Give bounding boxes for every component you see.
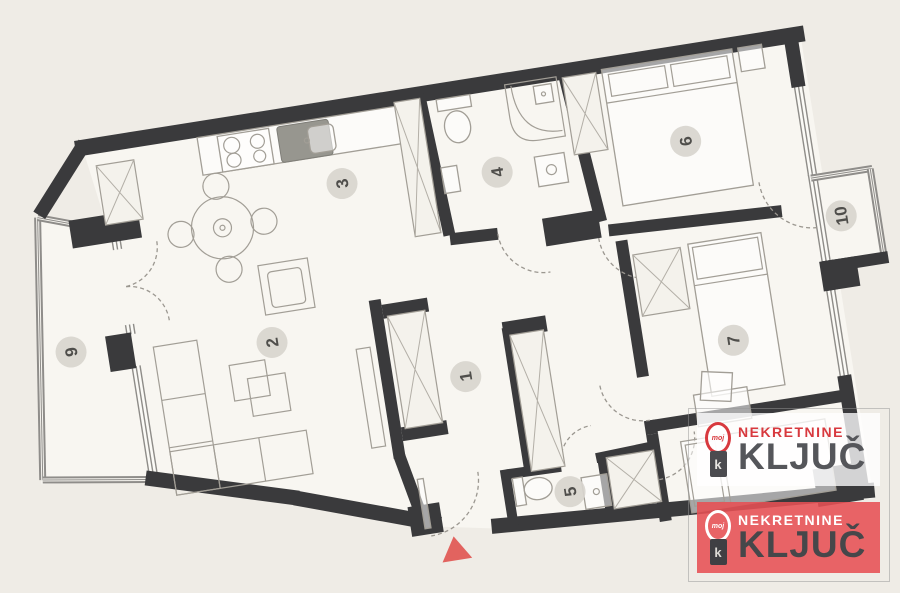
floor-plan-page: 1 2 3 4 5 6 7 9 10 bbox=[0, 0, 900, 593]
shower-head bbox=[533, 84, 554, 105]
sink-basin bbox=[307, 123, 337, 154]
wall-right-upper bbox=[791, 40, 799, 87]
watermark-logo-red: moj k NEKRETNINE KLJUČ bbox=[697, 502, 880, 573]
chunk-balcony-corner bbox=[822, 256, 860, 291]
key-icon: moj k bbox=[705, 510, 731, 565]
key-script-text: moj bbox=[712, 523, 724, 530]
bath-sink bbox=[441, 165, 461, 193]
key-letter: k bbox=[714, 458, 721, 471]
room-number-10: 10 bbox=[831, 205, 853, 227]
closet-by-toilet bbox=[606, 450, 662, 509]
terrace-pillar bbox=[105, 332, 136, 372]
toilet-sink bbox=[581, 474, 612, 510]
wall-bath-bottom bbox=[450, 232, 498, 241]
watermark-logo-light: moj k NEKRETNINE KLJUČ bbox=[697, 413, 880, 486]
washing-machine bbox=[534, 152, 568, 186]
wardrobe-bedroom7 bbox=[633, 247, 690, 316]
key-letter: k bbox=[714, 546, 721, 559]
brand-name-main: KLJUČ bbox=[738, 528, 866, 562]
brand-name-main: KLJUČ bbox=[738, 440, 866, 474]
desk-chair bbox=[696, 367, 737, 406]
key-script-text: moj bbox=[712, 435, 724, 442]
nightstand bbox=[738, 44, 765, 71]
key-icon: moj k bbox=[705, 422, 731, 477]
